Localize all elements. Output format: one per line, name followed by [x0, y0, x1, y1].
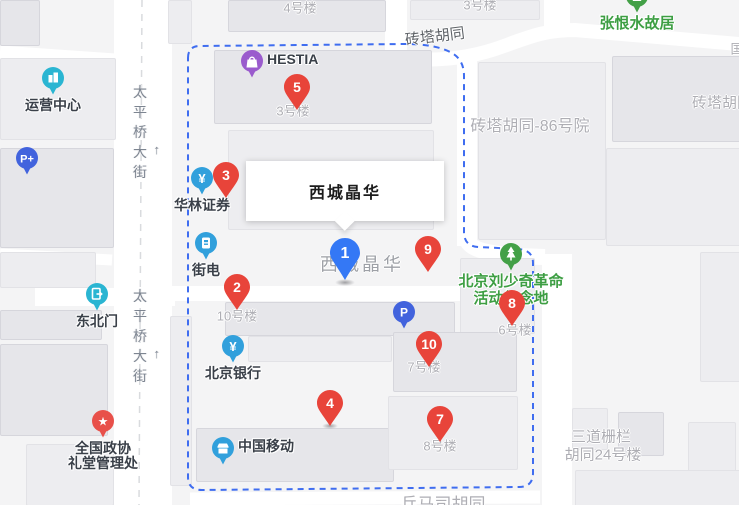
poi-label: 东北门: [76, 314, 118, 329]
poi-label: 运营中心: [25, 98, 81, 113]
svg-text:8: 8: [508, 295, 516, 311]
street-label-char: 太: [133, 289, 147, 303]
svg-text:★: ★: [98, 415, 109, 429]
poi-label: 张恨水故居: [599, 16, 674, 33]
svg-text:3: 3: [222, 167, 230, 183]
poi-marker-shop[interactable]: [211, 437, 235, 465]
street-label-vertical: 太平桥大街↑: [133, 85, 147, 185]
numbered-marker-8[interactable]: 8: [499, 290, 525, 326]
poi-marker-house[interactable]: [625, 0, 649, 13]
poi-marker-tree[interactable]: [499, 243, 523, 271]
poi-marker-parking[interactable]: P: [392, 301, 416, 329]
selected-place-title: 西城晶华: [309, 179, 381, 203]
svg-text:¥: ¥: [229, 339, 237, 354]
poi-marker-powerbank[interactable]: [194, 232, 218, 260]
street-label-char: 平: [133, 105, 147, 119]
poi-marker-bag[interactable]: [240, 50, 264, 78]
svg-text:P+: P+: [20, 154, 34, 166]
street-label-char: 街: [133, 165, 147, 179]
numbered-marker-9[interactable]: 9: [415, 236, 441, 272]
poi-label: 北京银行: [205, 366, 261, 381]
direction-arrow-icon: ↑: [154, 347, 161, 360]
street-label-char: 平: [133, 309, 147, 323]
numbered-marker-2[interactable]: 2: [224, 274, 250, 310]
parking-icon: P: [400, 306, 408, 320]
street-label-char: 大: [133, 349, 147, 363]
poi-marker-door[interactable]: [85, 283, 109, 311]
svg-text:10: 10: [421, 336, 437, 352]
poi-label: HESTIA: [267, 52, 318, 67]
svg-text:9: 9: [424, 241, 432, 257]
compound-boundary: [188, 44, 533, 490]
poi-label: 中国移动: [238, 439, 294, 454]
poi-marker-star[interactable]: ★: [91, 410, 115, 438]
street-label-char: 桥: [133, 125, 147, 139]
yuan-icon: ¥: [229, 339, 237, 354]
numbered-marker-10[interactable]: 10: [416, 331, 442, 367]
selected-place-infobox[interactable]: 西城晶华: [246, 161, 444, 221]
poi-label: 华林证券: [174, 198, 230, 213]
poi-marker-parking-plus[interactable]: P+: [15, 147, 39, 175]
numbered-marker-7[interactable]: 7: [427, 406, 453, 442]
yuan-icon: ¥: [198, 171, 206, 186]
poi-marker-building[interactable]: [41, 67, 65, 95]
direction-arrow-icon: ↑: [154, 143, 161, 156]
parking-plus-icon: P+: [20, 154, 34, 166]
street-label-char: 街: [133, 369, 147, 383]
star-icon: ★: [98, 415, 109, 429]
poi-label: 街电: [192, 263, 220, 278]
svg-text:2: 2: [233, 279, 241, 295]
street-label-char: 大: [133, 145, 147, 159]
svg-text:¥: ¥: [198, 171, 206, 186]
svg-text:5: 5: [293, 79, 301, 95]
svg-text:4: 4: [326, 395, 334, 411]
map-canvas[interactable]: 4号楼3号楼3号楼10号楼6号楼7号楼8号楼西城晶华砖塔胡同-86号院三道栅栏胡…: [0, 0, 739, 505]
svg-text:P: P: [400, 306, 408, 320]
poi-label: 全国政协 礼堂管理处: [68, 441, 138, 472]
street-label-char: 桥: [133, 329, 147, 343]
shop-icon: [218, 444, 229, 454]
numbered-marker-4[interactable]: 4: [317, 390, 343, 426]
street-label-char: 太: [133, 85, 147, 99]
numbered-marker-5[interactable]: 5: [284, 74, 310, 110]
poi-marker-yuan[interactable]: ¥: [221, 335, 245, 363]
numbered-marker-1[interactable]: 1: [330, 238, 360, 280]
svg-text:7: 7: [436, 411, 444, 427]
powerbank-icon: [202, 238, 210, 249]
svg-text:1: 1: [341, 245, 350, 262]
street-label-vertical: 太平桥大街↑: [133, 289, 147, 389]
numbered-marker-3[interactable]: 3: [213, 162, 239, 198]
poi-marker-yuan[interactable]: ¥: [190, 167, 214, 195]
